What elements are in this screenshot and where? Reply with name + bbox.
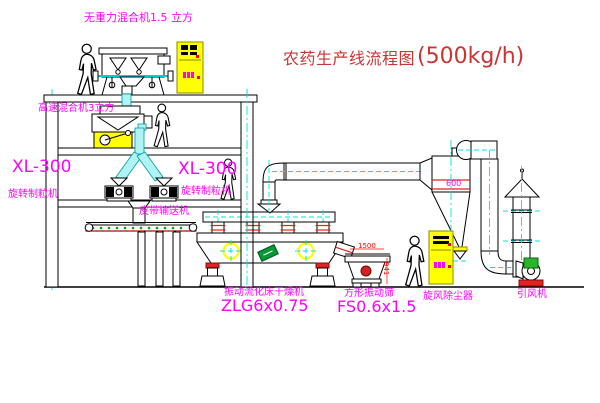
- label-belt-conveyor: 皮带输送机: [139, 207, 189, 217]
- fluid-bed-dryer: [197, 200, 343, 286]
- title-capacity: (500kg/h): [417, 44, 524, 69]
- no-gravity-mixer: [93, 48, 173, 95]
- person-floor2: [154, 104, 170, 147]
- diagram-title: 农药生产线流程图 (500kg/h): [283, 44, 524, 69]
- label-dryer-model: ZLG6x0.75: [221, 298, 309, 314]
- exhaust-duct: [263, 160, 434, 212]
- belt-conveyor: [85, 223, 197, 287]
- control-cabinet-lower: [429, 231, 453, 284]
- label-cyclone: 旋风除尘器: [423, 292, 473, 302]
- label-cyclone-size: 600: [446, 180, 461, 188]
- label-granulator-right-model: XL-300: [178, 161, 237, 178]
- granulator-left: [105, 178, 133, 201]
- label-fan: 引风机: [517, 290, 547, 300]
- label-granulator-right-name: 旋转制粒机: [181, 187, 231, 197]
- label-granulator-left-model: XL-300: [12, 159, 71, 176]
- label-granulator-left-name: 旋转制粒机: [8, 190, 58, 200]
- title-text: 农药生产线流程图: [283, 45, 415, 69]
- induced-draft-fan: [516, 258, 543, 286]
- control-cabinet-top: [177, 42, 203, 93]
- granulator-right: [150, 178, 178, 201]
- flow-diagram: 农药生产线流程图 (500kg/h) 无重力混合机1.5 立方 高速混合机3立方…: [0, 0, 600, 403]
- label-screen-model: FS0.6x1.5: [337, 299, 416, 315]
- label-top-mixer: 无重力混合机1.5 立方: [84, 12, 193, 23]
- dimension-screen-height: 941: [382, 262, 389, 275]
- dimension-screen-length: 1500: [358, 243, 376, 250]
- person-roof: [78, 44, 96, 94]
- label-high-speed-mixer: 高速混合机3立方: [38, 104, 114, 114]
- person-ground: [406, 236, 424, 286]
